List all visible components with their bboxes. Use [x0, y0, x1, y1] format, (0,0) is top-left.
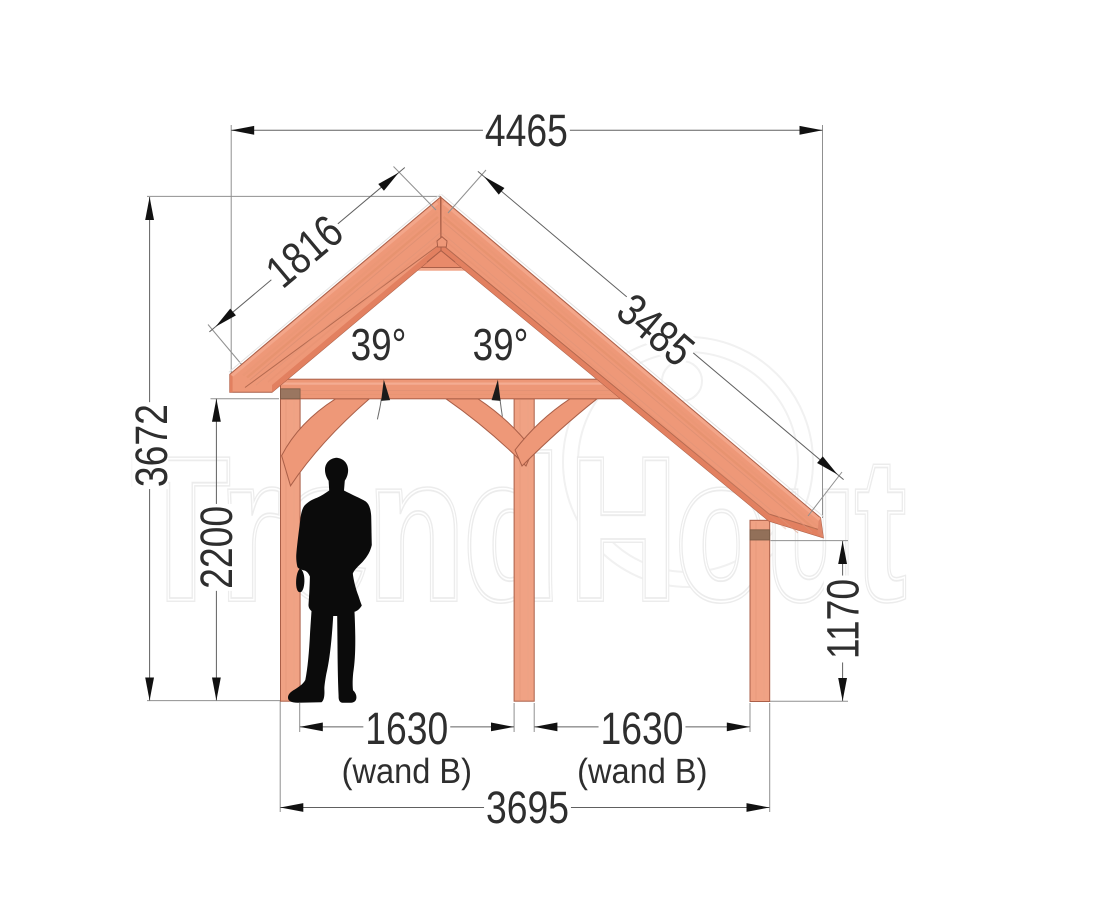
- svg-text:4465: 4465: [485, 105, 568, 156]
- svg-text:39°: 39°: [473, 319, 529, 370]
- svg-text:1630: 1630: [600, 703, 683, 754]
- svg-text:3672: 3672: [126, 404, 177, 487]
- svg-text:(wand B): (wand B): [577, 752, 707, 791]
- svg-text:39°: 39°: [351, 319, 407, 370]
- svg-text:3695: 3695: [486, 782, 569, 833]
- svg-text:1170: 1170: [817, 579, 868, 659]
- svg-text:2200: 2200: [191, 506, 242, 589]
- svg-text:1630: 1630: [365, 703, 448, 754]
- svg-text:(wand B): (wand B): [342, 752, 472, 791]
